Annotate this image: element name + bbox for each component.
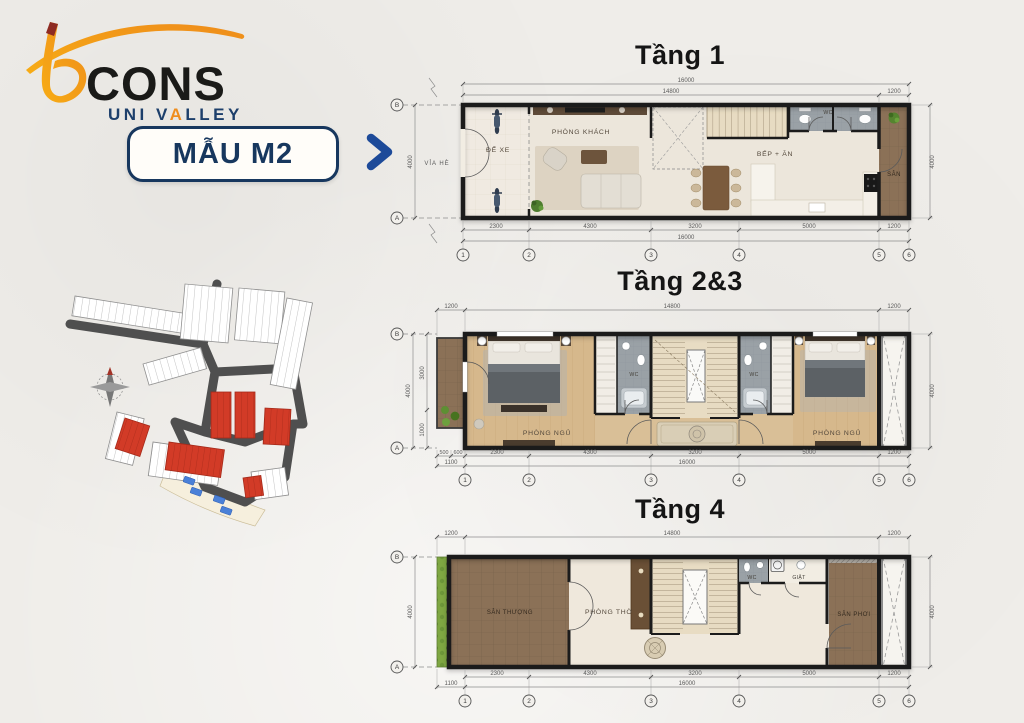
grid-col-label: 4: [737, 252, 741, 259]
grid-col-label: 5: [877, 252, 881, 259]
dimension-line: 4000: [911, 555, 936, 669]
grid-col-label: 4: [737, 477, 741, 484]
dim-label: 4000: [408, 605, 414, 619]
grid-bubbles: 1 2 3 4 5 6: [459, 695, 915, 707]
dim-label: 16000: [678, 78, 695, 84]
logo-b-glyph: [42, 22, 86, 103]
garage-label: ĐỂ XE: [486, 145, 510, 154]
dim-label: 16000: [678, 235, 695, 241]
grid-col-label: 5: [877, 698, 881, 705]
dim-label: 500: [440, 450, 449, 456]
altar-cabinet: [631, 557, 651, 629]
tang4-building: WC GIẶT: [437, 557, 909, 667]
dim-label: 5000: [802, 224, 816, 230]
grid-col-label: 6: [907, 477, 911, 484]
yard-label: SÂN: [887, 171, 901, 178]
poster-page: CONS UNI VALLEY MẪU M2 Tầng 1: [0, 0, 1024, 723]
logo-word: CONS: [86, 57, 226, 110]
dim-label: 1200: [887, 89, 901, 95]
dimension-line: 500 600 2300 4300 3200 5000 1200 1100 16…: [435, 450, 911, 474]
grid-row-label: B: [395, 331, 399, 338]
dimension-line: 4000: [911, 103, 936, 220]
grid-col-label: 6: [907, 252, 911, 259]
wc-left: WC: [617, 334, 651, 414]
staircase: [651, 557, 739, 634]
dim-label: 1200: [887, 450, 901, 456]
wc-label: WC: [823, 110, 832, 116]
dimension-line: 2300 4300 3200 5000 1200 16000: [461, 220, 911, 249]
dim-label: 1200: [887, 531, 901, 537]
dim-label: 3000: [420, 366, 426, 380]
grid-row-label: B: [395, 554, 399, 561]
site-master-plan: [55, 272, 330, 530]
dim-label: 1000: [420, 423, 426, 437]
grid-row-label: A: [395, 215, 400, 222]
dimension-line: 4000: [911, 332, 936, 450]
dimension-line: 2300 4300 3200 5000 1200 1100 16000: [435, 669, 911, 695]
laundry-label: GIẶT: [792, 574, 806, 581]
grid-col-label: 3: [649, 477, 653, 484]
dim-label: 3200: [688, 671, 702, 677]
grid-row-label: A: [395, 445, 400, 452]
dim-label: 14800: [664, 304, 681, 310]
wardrobe: [771, 334, 793, 414]
tang1-building: ĐỂ XE PHÒNG KHÁCH BẾP + ĂN WC SÂN: [461, 105, 910, 218]
window: [813, 332, 857, 336]
dim-label: 2300: [490, 671, 504, 677]
dim-label: 1200: [444, 531, 458, 537]
grid-row-label: A: [395, 664, 400, 671]
bedroom-label: PHÒNG NGỦ: [813, 428, 861, 437]
wc-label: WC: [749, 372, 758, 378]
plan1-title: Tầng 1: [385, 40, 975, 71]
staircase: [651, 334, 739, 418]
grid-col-label: 2: [527, 698, 531, 705]
grid-bubbles: 1 2 3 4 5 6: [459, 474, 915, 486]
void-shaft: [879, 334, 909, 448]
dim-label: 4000: [406, 384, 412, 398]
model-m2-button[interactable]: MẪU M2: [127, 126, 339, 182]
dim-label: 3200: [688, 450, 702, 456]
tang23-building: WC WC: [437, 332, 909, 448]
logo-subtitle: UNI VALLEY: [108, 105, 243, 124]
dining-set: [691, 166, 741, 210]
dim-label: 2300: [490, 450, 504, 456]
window: [497, 332, 553, 336]
compass-rose-icon: [90, 367, 130, 407]
wc-right: WC: [739, 334, 771, 414]
dim-label: 16000: [679, 460, 696, 466]
tang1-left-annotations: B A 4000 VỈA HÈ: [391, 78, 461, 243]
dimension-line: 1200 14800 1200: [435, 531, 911, 555]
dim-label: 4300: [583, 224, 597, 230]
dim-label: 16000: [679, 681, 696, 687]
drying-yard-label: SÂN PHƠI: [837, 611, 870, 618]
wardrobe: [595, 334, 617, 414]
bedroom-label: PHÒNG NGỦ: [523, 428, 571, 437]
hall-medallion-rug: [645, 638, 666, 659]
grid-col-label: 6: [907, 698, 911, 705]
dim-label: 4300: [583, 671, 597, 677]
dim-label: 1200: [887, 671, 901, 677]
grid-col-label: 2: [527, 477, 531, 484]
plan3-title: Tầng 4: [385, 494, 975, 525]
dim-label: 5000: [802, 450, 816, 456]
dim-label: 1100: [445, 460, 459, 466]
grid-col-label: 2: [527, 252, 531, 259]
dim-label: 14800: [663, 89, 680, 95]
wc-label: WC: [747, 575, 756, 581]
dim-label: 4000: [408, 155, 414, 169]
plan-tang1-drawing: B A 4000 VỈA HÈ: [385, 74, 1015, 266]
hall-rug: [657, 422, 737, 446]
living-room-label: PHÒNG KHÁCH: [552, 127, 610, 136]
balcony: [437, 338, 465, 428]
plan-tang4-drawing: B A 4000: [385, 524, 1015, 722]
dim-label: 1100: [445, 681, 459, 687]
dimension-line: 16000 14800 1200: [461, 78, 911, 102]
dimension-line: 1200 14800 1200: [435, 304, 911, 336]
dim-label: 4300: [583, 450, 597, 456]
grid-row-label: B: [395, 102, 399, 109]
plan2-title: Tầng 2&3: [385, 266, 975, 297]
dim-label: 4000: [930, 155, 936, 169]
grid-bubbles: 1 2 3 4 5 6: [457, 249, 915, 261]
dim-label: 600: [454, 450, 463, 456]
dim-label: 4000: [930, 605, 936, 619]
grid-col-label: 3: [649, 252, 653, 259]
worship-room-label: PHÒNG THỜ: [585, 607, 633, 616]
dim-label: 1200: [887, 304, 901, 310]
terrace-label: SÂN THƯỢNG: [487, 609, 533, 616]
grid-col-label: 1: [461, 252, 465, 259]
model-m2-label: MẪU M2: [173, 138, 293, 170]
wc-room: [789, 105, 879, 131]
bcons-logo: CONS UNI VALLEY: [14, 6, 254, 126]
dim-label: 1200: [887, 224, 901, 230]
sidewalk-label: VỈA HÈ: [424, 160, 449, 167]
dim-label: 4000: [930, 384, 936, 398]
dim-label: 1200: [444, 304, 458, 310]
wc-label: WC: [629, 372, 638, 378]
entry-opening: [461, 129, 466, 177]
grid-col-label: 5: [877, 477, 881, 484]
grid-col-label: 1: [463, 477, 467, 484]
break-line-icon: [429, 224, 437, 243]
dim-label: 14800: [664, 531, 681, 537]
tang23-left-annotations: B A 3000 1000 4000: [391, 328, 437, 454]
grid-col-label: 4: [737, 698, 741, 705]
grid-col-label: 1: [463, 698, 467, 705]
plan-tang23-drawing: B A 3000 1000 4000: [385, 298, 1015, 498]
grid-col-label: 3: [649, 698, 653, 705]
balcony-door-opening: [463, 362, 467, 392]
dim-label: 3200: [688, 224, 702, 230]
tang4-left-annotations: B A 4000: [391, 551, 437, 673]
void-shaft: [879, 557, 909, 667]
dim-label: 2300: [489, 224, 503, 230]
dim-label: 5000: [802, 671, 816, 677]
break-line-icon: [429, 78, 437, 97]
